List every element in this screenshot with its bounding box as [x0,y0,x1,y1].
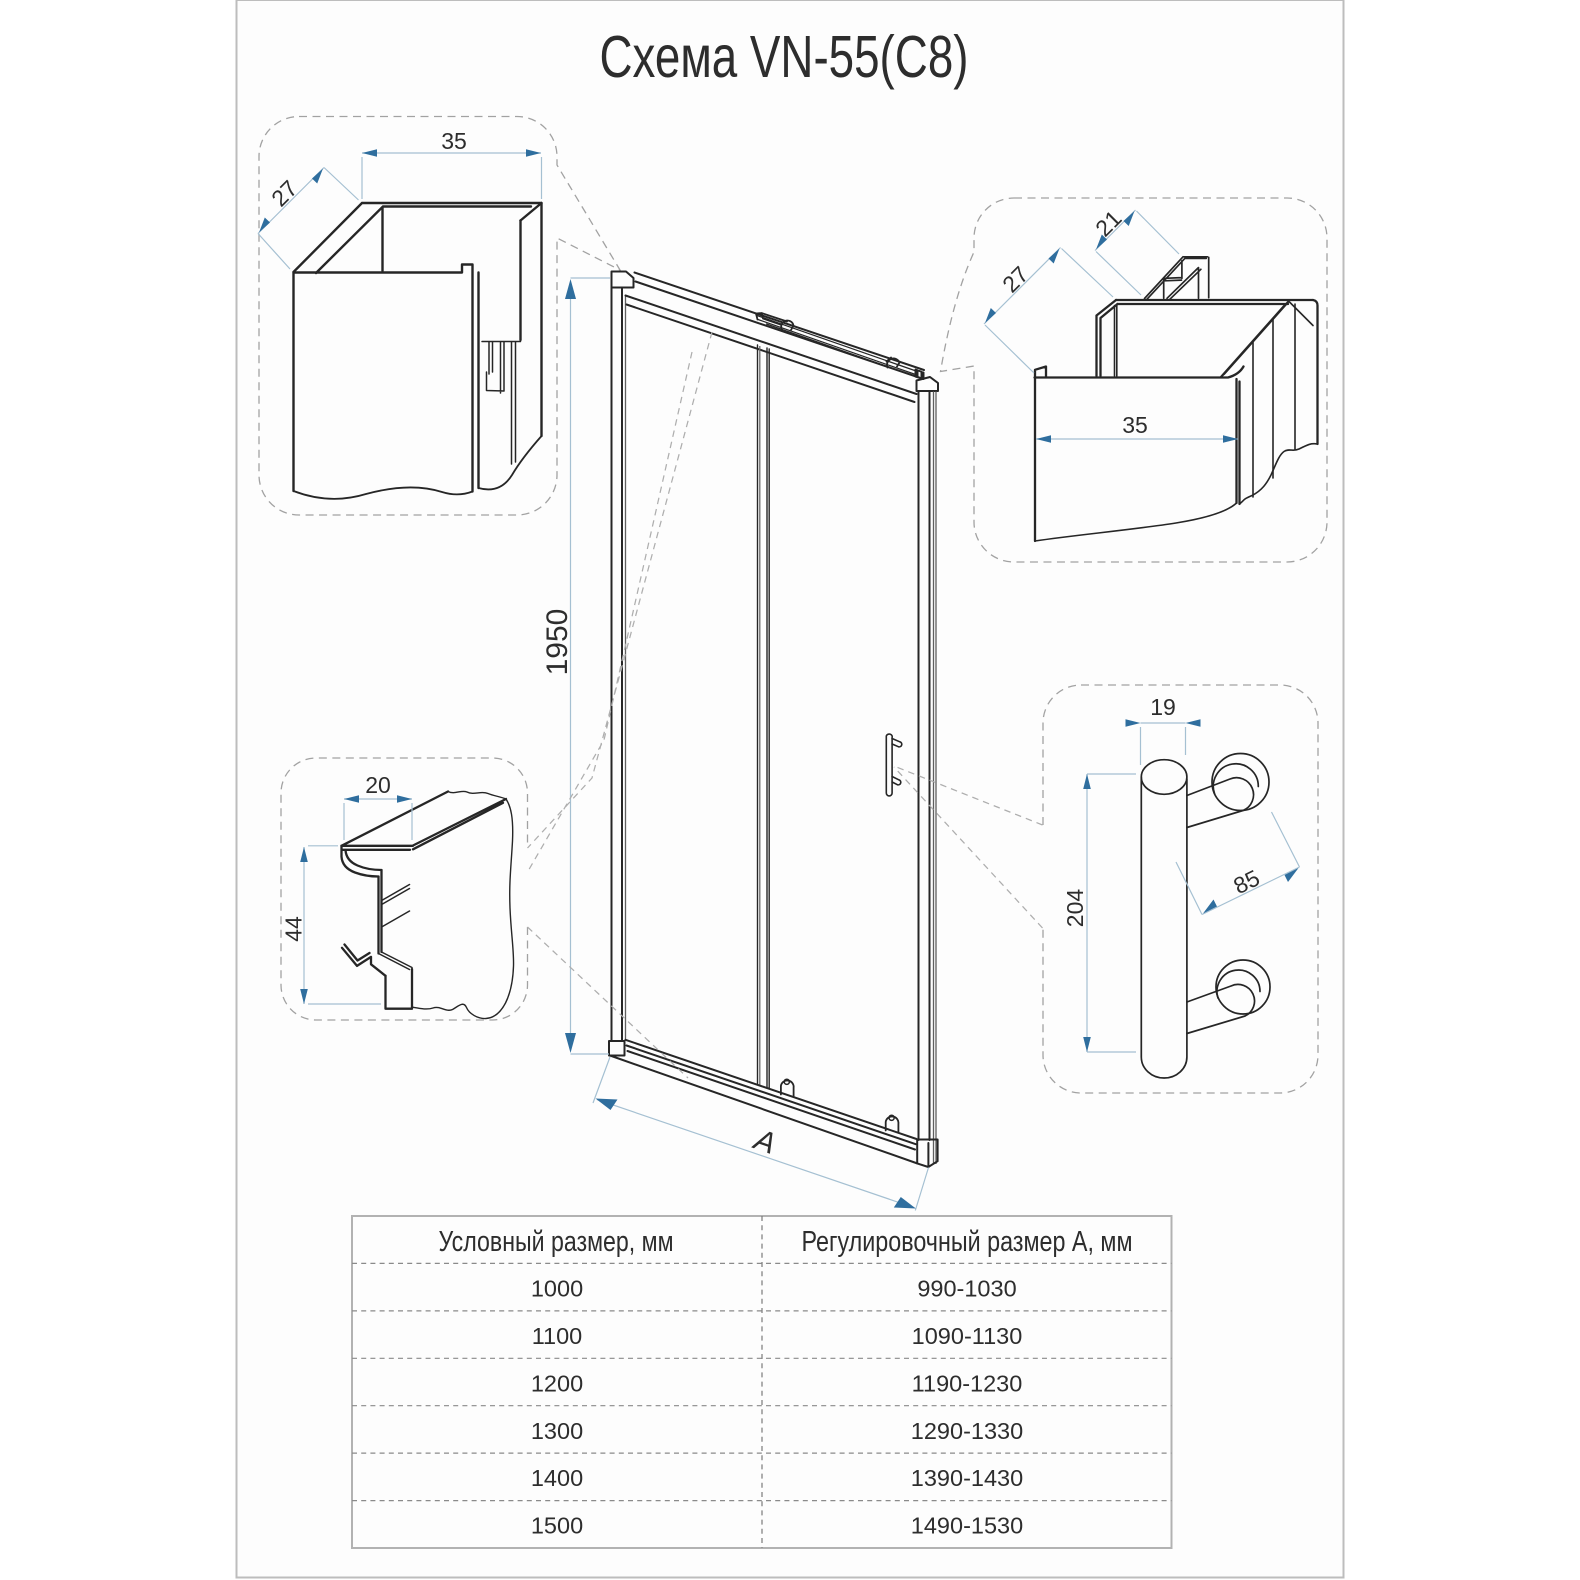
svg-text:19: 19 [1150,694,1176,720]
svg-text:1100: 1100 [532,1323,583,1349]
svg-text:1490-1530: 1490-1530 [911,1513,1023,1539]
svg-text:Регулировочный размер А, мм: Регулировочный размер А, мм [802,1226,1133,1258]
svg-text:1190-1230: 1190-1230 [912,1370,1023,1396]
svg-text:1500: 1500 [531,1513,583,1539]
svg-text:1300: 1300 [531,1418,583,1444]
svg-text:1950: 1950 [541,609,574,676]
svg-text:44: 44 [281,916,307,942]
svg-text:1200: 1200 [531,1370,583,1396]
svg-text:20: 20 [365,772,391,798]
svg-text:990-1030: 990-1030 [917,1276,1016,1302]
svg-text:35: 35 [1122,412,1148,438]
svg-text:204: 204 [1062,889,1088,928]
svg-text:1390-1430: 1390-1430 [911,1465,1023,1491]
svg-text:Условный размер, мм: Условный размер, мм [439,1226,674,1258]
svg-text:1090-1130: 1090-1130 [912,1323,1023,1349]
svg-text:1400: 1400 [531,1465,583,1491]
svg-text:Схема VN-55(C8): Схема VN-55(C8) [600,24,969,90]
svg-text:35: 35 [441,128,467,154]
svg-text:1290-1330: 1290-1330 [911,1418,1023,1444]
svg-text:1000: 1000 [531,1276,583,1302]
